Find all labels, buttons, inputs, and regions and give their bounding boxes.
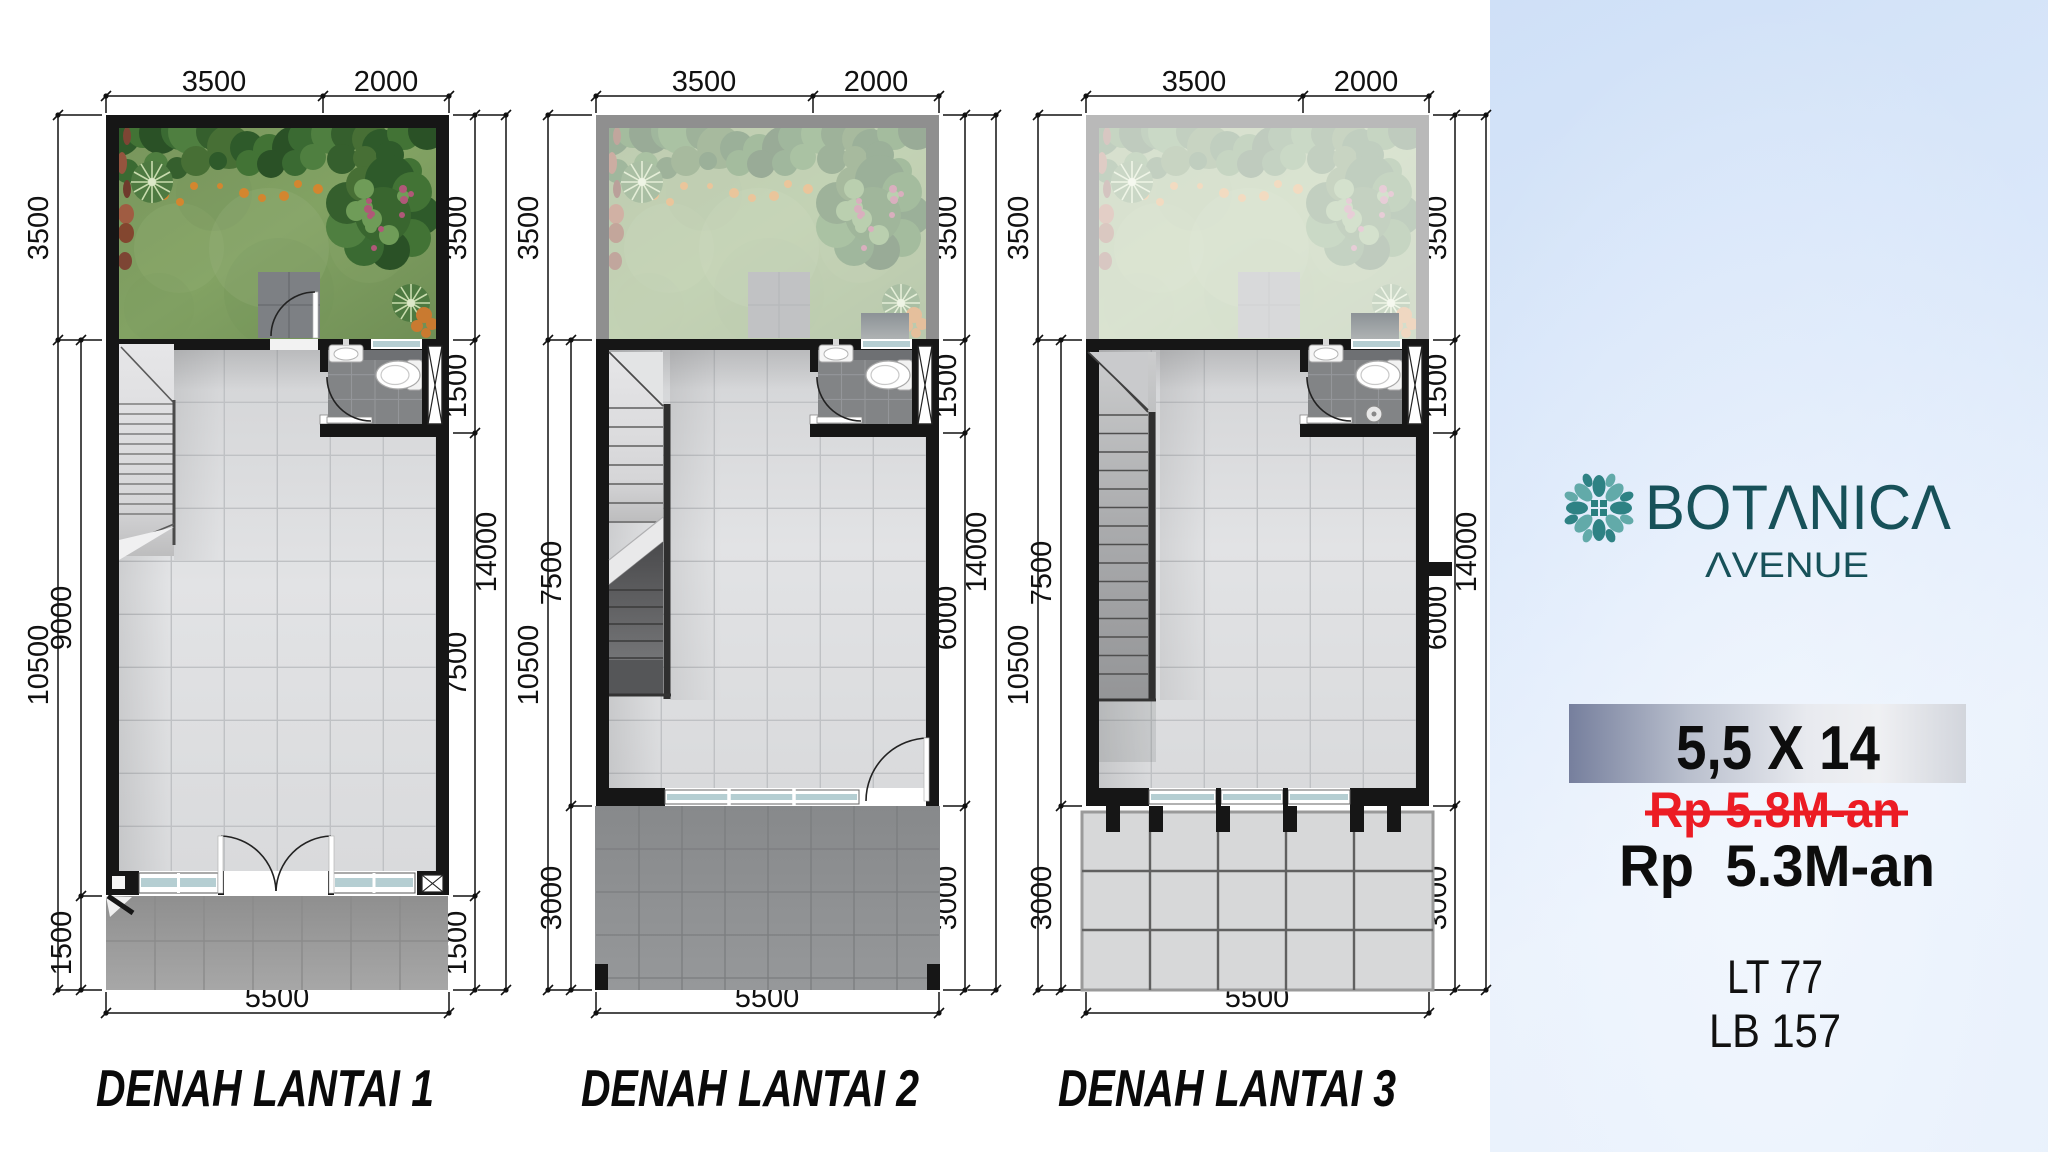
svg-text:3000: 3000 (1026, 866, 1058, 931)
svg-text:DENAH LANTAI 3: DENAH LANTAI 3 (1058, 1060, 1396, 1118)
svg-text:DENAH LANTAI 1: DENAH LANTAI 1 (96, 1060, 434, 1118)
svg-text:9000: 9000 (46, 586, 78, 651)
svg-text:2000: 2000 (354, 66, 419, 98)
svg-text:2000: 2000 (844, 66, 909, 98)
svg-text:3500: 3500 (672, 66, 737, 98)
svg-text:Rp 5.3M-an: Rp 5.3M-an (1619, 834, 1935, 899)
svg-text:ΛVENUE: ΛVENUE (1705, 546, 1869, 585)
svg-text:1500: 1500 (46, 911, 78, 976)
svg-text:Rp 5.8M-an: Rp 5.8M-an (1649, 782, 1901, 838)
svg-text:DENAH LANTAI 2: DENAH LANTAI 2 (581, 1060, 919, 1118)
svg-text:3500: 3500 (23, 196, 55, 261)
svg-text:LB 157: LB 157 (1709, 1004, 1841, 1057)
svg-text:7500: 7500 (536, 541, 568, 606)
svg-text:7500: 7500 (1026, 541, 1058, 606)
svg-text:14000: 14000 (961, 512, 993, 593)
svg-text:3500: 3500 (513, 196, 545, 261)
svg-text:3500: 3500 (1162, 66, 1227, 98)
svg-text:BOTΛNICΛ: BOTΛNICΛ (1645, 473, 1951, 543)
svg-text:3000: 3000 (536, 866, 568, 931)
svg-text:14000: 14000 (1451, 512, 1483, 593)
svg-text:5,5 X 14: 5,5 X 14 (1676, 714, 1880, 783)
svg-text:3500: 3500 (1003, 196, 1035, 261)
svg-text:3500: 3500 (182, 66, 247, 98)
svg-text:10500: 10500 (513, 625, 545, 706)
svg-text:2000: 2000 (1334, 66, 1399, 98)
svg-text:14000: 14000 (471, 512, 503, 593)
svg-text:10500: 10500 (1003, 625, 1035, 706)
svg-text:LT 77: LT 77 (1727, 950, 1823, 1003)
